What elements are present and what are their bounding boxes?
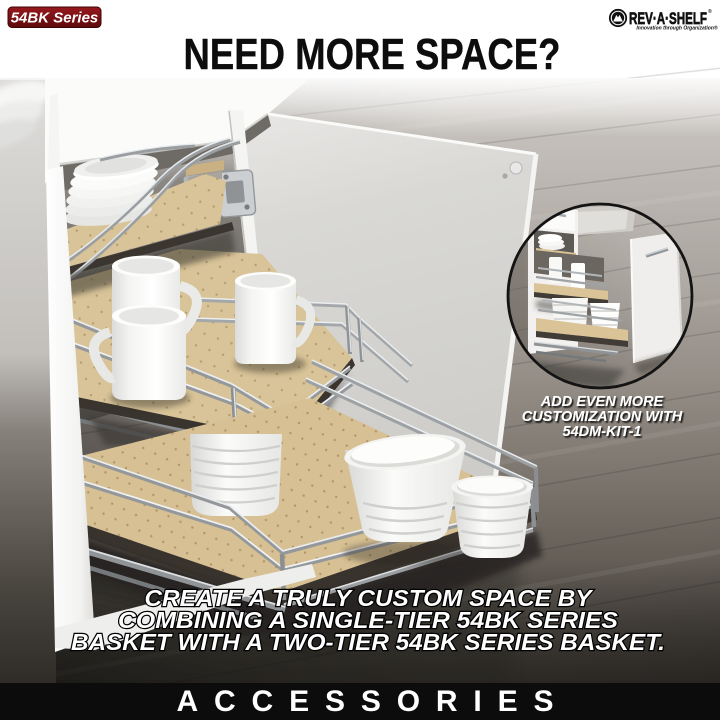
svg-text:54BK Series: 54BK Series (11, 10, 99, 27)
svg-text:BASKET WITH A TWO-TIER 54BK SE: BASKET WITH A TWO-TIER 54BK SERIES BASKE… (71, 629, 665, 655)
svg-text:54DM-KIT-1: 54DM-KIT-1 (563, 424, 642, 440)
svg-text:CUSTOMIZATION WITH: CUSTOMIZATION WITH (522, 409, 683, 425)
svg-text:ADD EVEN MORE: ADD EVEN MORE (540, 394, 665, 410)
svg-text:®: ® (708, 8, 712, 15)
svg-text:Innovation through Organizatio: Innovation through Organization® (636, 25, 717, 32)
svg-text:NEED MORE SPACE?: NEED MORE SPACE? (184, 30, 561, 79)
svg-text:ACCESSORIES: ACCESSORIES (177, 685, 568, 718)
